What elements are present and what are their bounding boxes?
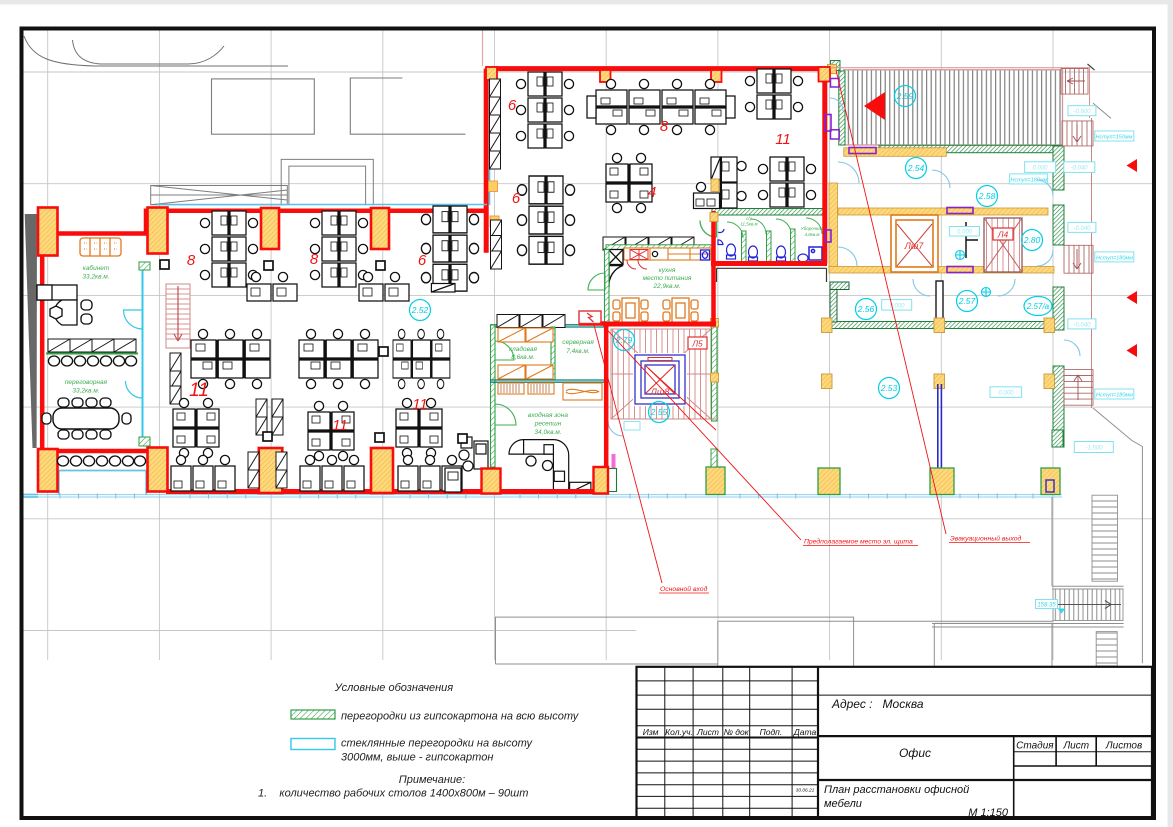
svg-text:8: 8 <box>310 251 319 268</box>
svg-text:кабинет: кабинет <box>83 264 110 272</box>
svg-text:0.000: 0.000 <box>1032 166 1048 172</box>
svg-text:7,4кв.м.: 7,4кв.м. <box>566 348 590 355</box>
svg-text:2.57: 2.57 <box>958 296 976 306</box>
svg-text:0.000: 0.000 <box>998 391 1014 397</box>
svg-text:Эвакуационный выход: Эвакуационный выход <box>950 535 1022 543</box>
svg-text:Основной вход: Основной вход <box>660 585 708 593</box>
svg-text:с/у: с/у <box>746 216 753 221</box>
svg-text:2.55: 2.55 <box>650 407 668 417</box>
svg-text:2.58: 2.58 <box>978 191 996 201</box>
svg-text:6: 6 <box>418 252 427 269</box>
svg-text:Лш8: Лш8 <box>650 387 670 397</box>
svg-text:переговорная: переговорная <box>65 379 108 386</box>
svg-text:ресепшн: ресепшн <box>534 421 562 428</box>
svg-text:Адрес : Москва: Адрес : Москва <box>831 697 924 711</box>
svg-text:2.54: 2.54 <box>907 163 925 173</box>
svg-text:0.000: 0.000 <box>957 230 973 236</box>
svg-text:-0.040: -0.040 <box>1073 226 1091 232</box>
svg-text:Уборочная: Уборочная <box>801 226 824 231</box>
svg-text:Листов: Листов <box>1105 741 1142 752</box>
svg-text:Hступ=180мм: Hступ=180мм <box>1096 393 1133 399</box>
svg-text:Лист: Лист <box>696 727 719 737</box>
svg-text:8: 8 <box>660 118 669 135</box>
svg-text:Лист: Лист <box>1062 741 1089 752</box>
svg-text:Лш7: Лш7 <box>904 241 925 251</box>
svg-text:33,2кв.м.: 33,2кв.м. <box>82 274 109 281</box>
svg-text:мебели: мебели <box>824 798 862 810</box>
svg-text:33,2кв.м.: 33,2кв.м. <box>72 388 99 395</box>
svg-text:Изм: Изм <box>643 727 659 737</box>
svg-text:2.59: 2.59 <box>896 91 914 101</box>
svg-text:8: 8 <box>187 252 196 269</box>
svg-text:6: 6 <box>508 97 517 114</box>
svg-text:Дата: Дата <box>793 727 817 737</box>
svg-text:серверная: серверная <box>562 339 594 346</box>
svg-text:кухня: кухня <box>659 267 676 274</box>
svg-text:Л5: Л5 <box>691 339 703 349</box>
svg-text:кладовая: кладовая <box>509 345 537 353</box>
svg-text:Л4: Л4 <box>997 230 1009 240</box>
svg-text:№ док: № док <box>724 727 750 737</box>
svg-text:3000мм, выше - гипсокартон: 3000мм, выше - гипсокартон <box>341 752 493 764</box>
svg-text:2.79: 2.79 <box>615 335 633 345</box>
svg-text:6: 6 <box>512 190 521 207</box>
svg-text:4,8кв.м: 4,8кв.м <box>804 232 819 237</box>
svg-text:-1.500: -1.500 <box>1085 446 1103 452</box>
svg-text:2.57/а: 2.57/а <box>1026 302 1050 311</box>
svg-text:Hступ=150мм: Hступ=150мм <box>1096 135 1133 141</box>
svg-text:место питания: место питания <box>643 275 692 282</box>
svg-text:перегородки из гипсокартона на: перегородки из гипсокартона на всю высот… <box>341 711 580 723</box>
svg-text:Предполагаемое место эл. щита: Предполагаемое место эл. щита <box>804 538 913 546</box>
svg-text:Подп.: Подп. <box>760 727 783 737</box>
svg-text:2.53: 2.53 <box>880 383 898 393</box>
svg-text:2.56: 2.56 <box>857 304 875 314</box>
svg-text:11: 11 <box>332 417 348 434</box>
svg-text:2.80: 2.80 <box>1023 235 1041 245</box>
svg-text:Кол.уч.: Кол.уч. <box>665 727 693 737</box>
svg-text:Стадия: Стадия <box>1016 741 1054 752</box>
svg-text:Hступ=180мм: Hступ=180мм <box>1096 255 1133 261</box>
svg-text:158.35: 158.35 <box>1037 603 1056 609</box>
svg-text:22,9кв.м.: 22,9кв.м. <box>652 283 680 290</box>
svg-text:11: 11 <box>189 380 209 401</box>
svg-text:34,0кв.м.: 34,0кв.м. <box>534 429 561 436</box>
svg-text:30.06.21: 30.06.21 <box>796 788 815 794</box>
svg-text:План расстановки офисной: План расстановки офисной <box>824 784 969 796</box>
svg-text:Примечание:: Примечание: <box>399 774 465 786</box>
svg-text:4: 4 <box>648 184 656 201</box>
svg-text:8,6кв.м.: 8,6кв.м. <box>511 354 535 361</box>
svg-text:Условные обозначения: Условные обозначения <box>334 682 454 694</box>
svg-text:-0.040: -0.040 <box>1073 323 1091 329</box>
svg-text:Офис: Офис <box>899 746 931 760</box>
svg-text:-0.600: -0.600 <box>1073 109 1091 115</box>
svg-text:1. количество рабочих столо: 1. количество рабочих столов 1400х800м –… <box>258 788 528 800</box>
svg-text:2.52: 2.52 <box>411 305 429 315</box>
svg-text:11: 11 <box>412 396 428 413</box>
svg-text:11,5кв.м: 11,5кв.м <box>740 222 757 227</box>
svg-text:входная зона: входная зона <box>528 411 568 419</box>
svg-text:-0.040: -0.040 <box>1070 166 1088 172</box>
svg-text:11: 11 <box>775 131 791 148</box>
svg-text:стеклянные перегородки на высо: стеклянные перегородки на высоту <box>341 738 534 750</box>
